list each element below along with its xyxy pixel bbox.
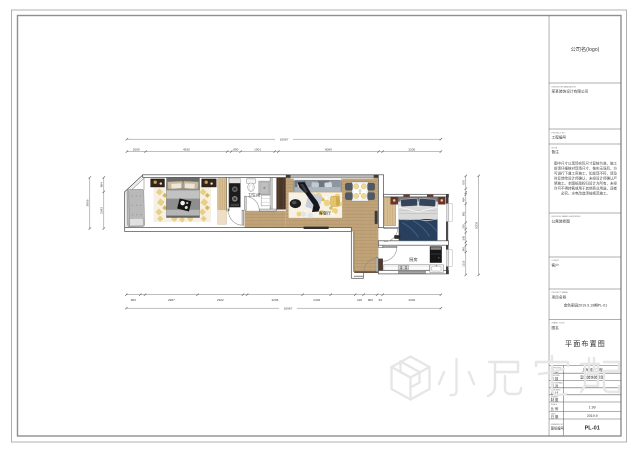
svg-text:客餐厅: 客餐厅 <box>319 210 332 217</box>
svg-text:PROJECT NAME: PROJECT NAME <box>552 291 569 294</box>
svg-text:2987: 2987 <box>168 298 175 302</box>
svg-text:工程编号: 工程编号 <box>552 135 567 140</box>
svg-text:6069: 6069 <box>325 147 332 151</box>
svg-text:500: 500 <box>461 235 465 240</box>
svg-text:1210: 1210 <box>461 260 465 266</box>
svg-text:678: 678 <box>461 180 465 185</box>
svg-text:418: 418 <box>357 298 362 302</box>
svg-text:BUILDING NAME & ADDRESS: BUILDING NAME & ADDRESS <box>552 215 581 218</box>
svg-text:制 图: 制 图 <box>551 397 559 402</box>
svg-text:84: 84 <box>379 298 383 302</box>
svg-text:前请仔细核对现场尺寸，核实无误后，方: 前请仔细核对现场尺寸，核实无误后，方 <box>554 166 617 171</box>
svg-text:2019.9: 2019.9 <box>587 414 598 418</box>
svg-text:备注: 备注 <box>552 149 560 154</box>
svg-text:4930: 4930 <box>183 147 190 151</box>
svg-text:SCALE: SCALE <box>551 403 558 406</box>
svg-text:图纸编号: 图纸编号 <box>551 425 565 430</box>
svg-text:平面布置图: 平面布置图 <box>565 339 606 348</box>
svg-text:2349: 2349 <box>313 298 320 302</box>
svg-text:800: 800 <box>368 298 373 302</box>
svg-text:图中尺寸以现场实际尺寸复核为准，施工: 图中尺寸以现场实际尺寸复核为准，施工 <box>554 161 617 166</box>
svg-text:1:99: 1:99 <box>589 405 596 409</box>
svg-text:CLIENT: CLIENT <box>552 260 560 262</box>
svg-text:3806: 3806 <box>86 199 90 206</box>
svg-text:时反馈给设计师确认，未经设计师确认严: 时反馈给设计师确认，未经设计师确认严 <box>554 176 617 181</box>
svg-text:图名: 图名 <box>552 325 560 330</box>
svg-text:336: 336 <box>461 224 465 229</box>
svg-text:484: 484 <box>461 197 465 202</box>
svg-text:客户: 客户 <box>552 262 560 267</box>
svg-text:348: 348 <box>461 247 465 252</box>
svg-text:2009: 2009 <box>133 147 140 151</box>
svg-text:2942: 2942 <box>99 207 103 214</box>
svg-text:公司名(logo): 公司名(logo) <box>571 45 600 53</box>
svg-text:厨房: 厨房 <box>409 256 417 263</box>
svg-text:卫生间: 卫生间 <box>248 191 261 198</box>
svg-text:日 期: 日 期 <box>551 414 559 419</box>
svg-text:比 例: 比 例 <box>551 406 559 411</box>
svg-text:必究。水电改造须按规范施工。: 必究。水电改造须按规范施工。 <box>561 191 610 196</box>
svg-text:809: 809 <box>131 298 136 302</box>
svg-text:5205: 5205 <box>474 222 478 229</box>
svg-text:890: 890 <box>233 147 238 151</box>
svg-text:3200: 3200 <box>408 147 415 151</box>
svg-text:某某装饰设计有限公司: 某某装饰设计有限公司 <box>552 89 589 94</box>
svg-text:1901: 1901 <box>254 147 261 151</box>
svg-text:禁施工。本图纸版权归设计方所有，未经: 禁施工。本图纸版权归设计方所有，未经 <box>554 181 617 186</box>
svg-text:992: 992 <box>461 211 465 216</box>
svg-text:项目名称: 项目名称 <box>552 294 567 299</box>
svg-text:PROJECT NO.: PROJECT NO. <box>552 132 566 134</box>
svg-text:4205: 4205 <box>271 298 278 302</box>
svg-text:SHEET TITLE: SHEET TITLE <box>552 323 566 325</box>
svg-text:公寓装修图: 公寓装修图 <box>552 218 571 223</box>
svg-text:3200: 3200 <box>408 298 415 302</box>
svg-text:16967: 16967 <box>280 138 289 142</box>
svg-text:可进行下道工序施工，如发现不符，请及: 可进行下道工序施工，如发现不符，请及 <box>554 171 617 176</box>
svg-text:864: 864 <box>99 182 103 187</box>
svg-text:金色家园2019.9.19期PL-01: 金色家园2019.9.19期PL-01 <box>564 303 608 308</box>
svg-text:DESIGN ORGANIZATION: DESIGN ORGANIZATION <box>552 86 577 89</box>
svg-text:许可不得转载或用于其他商业用途，违者: 许可不得转载或用于其他商业用途，违者 <box>554 186 617 191</box>
svg-text:PL-01: PL-01 <box>585 426 600 432</box>
svg-text:2922: 2922 <box>217 298 224 302</box>
svg-text:16967: 16967 <box>284 307 293 311</box>
svg-text:NOTE: NOTE <box>552 147 558 149</box>
